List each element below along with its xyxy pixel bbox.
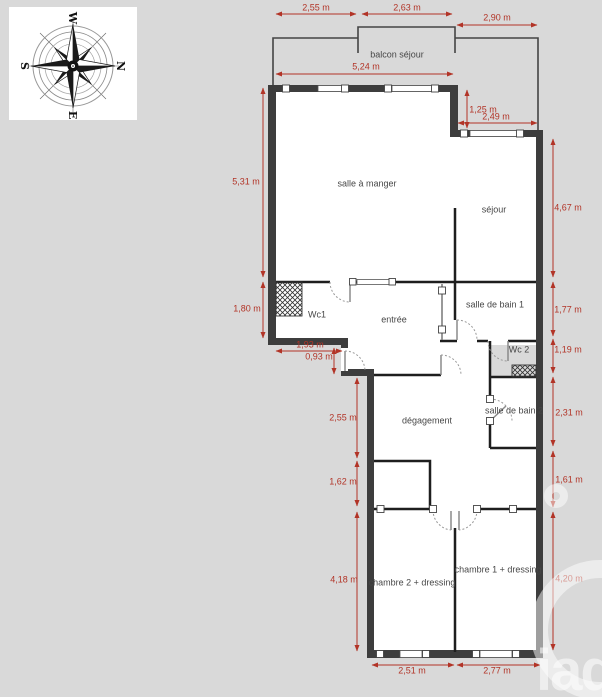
room-label-chambre1: chambre 1 + dressing	[455, 566, 542, 575]
dim-sejour-height: 4,67 m	[554, 204, 582, 213]
dim-balcony-middle: 2,63 m	[393, 4, 421, 13]
room-label-wc1: Wc1	[308, 311, 326, 320]
dim-chambre2-height: 4,18 m	[330, 576, 358, 585]
compass-letter-e: E	[66, 111, 79, 119]
compass-rose: W N E S	[9, 7, 137, 120]
compass-letter-n: N	[114, 61, 127, 71]
room-label-chambre2: chambre 2 + dressing	[369, 579, 456, 588]
dim-sdb2-height: 2,31 m	[555, 409, 583, 418]
dim-chambre2-width: 2,51 m	[398, 667, 426, 676]
floorplan-page: W N E S balcon séjour salle à manger séj…	[0, 0, 602, 697]
dim-salle-a-manger-height: 5,31 m	[232, 178, 260, 187]
dim-balcony-right: 2,90 m	[483, 14, 511, 23]
dim-salle-a-manger-width: 5,24 m	[352, 63, 380, 72]
dim-balcony-left: 2,55 m	[302, 4, 330, 13]
dim-chambre1-upper: 1,61 m	[555, 476, 583, 485]
compass-letter-w: W	[66, 11, 79, 25]
room-label-entree: entrée	[381, 316, 407, 325]
room-label-sdb1: salle de bain 1	[466, 301, 524, 310]
room-label-sdb2: salle de bain 2	[485, 407, 543, 416]
dim-chambre1-width: 2,77 m	[483, 667, 511, 676]
room-label-wc2: Wc 2	[509, 346, 530, 355]
shower-hatch-wc1	[276, 282, 302, 316]
compass-letter-s: S	[18, 62, 31, 70]
dim-sejour-width: 2,49 m	[482, 113, 510, 122]
dim-degagement-upper: 2,55 m	[329, 414, 357, 423]
room-label-degagement: dégagement	[402, 417, 452, 426]
dim-degagement-lower: 1,62 m	[329, 478, 357, 487]
watermark-text: iad	[536, 642, 602, 697]
room-label-salle-a-manger: salle à manger	[337, 180, 396, 189]
dim-chambre1-height: 4,20 m	[555, 575, 583, 584]
dim-wc2-height: 1,19 m	[554, 346, 582, 355]
dim-wc1-width: 1,93 m	[296, 341, 324, 350]
room-label-balcon: balcon séjour	[370, 51, 424, 60]
shower-hatch-wc2	[512, 365, 536, 377]
room-label-sejour: séjour	[482, 206, 507, 215]
dim-entree-step: 0,93 m	[305, 353, 333, 362]
dim-wc1-height: 1,80 m	[233, 305, 261, 314]
dim-sdb1-height: 1,77 m	[554, 306, 582, 315]
